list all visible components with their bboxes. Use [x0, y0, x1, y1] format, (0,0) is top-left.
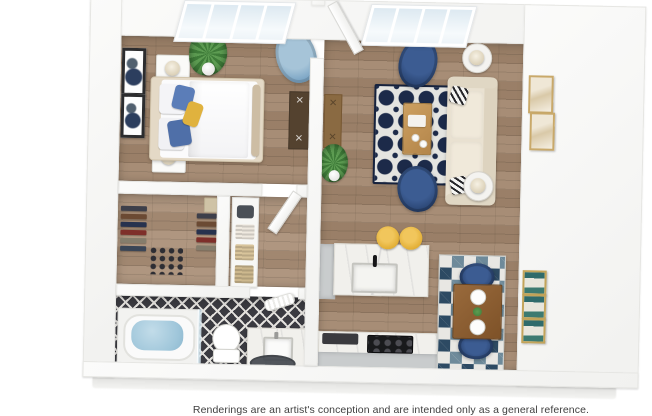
- bedroom-wall-art-1: [121, 48, 146, 96]
- desk-x-leg: ✕: [295, 96, 304, 106]
- woven-basket: [235, 244, 254, 260]
- desk-x-leg: ✕: [295, 134, 304, 144]
- living-console-table: ✕✕: [323, 94, 342, 148]
- dining-wall-art-2: [522, 294, 547, 319]
- kitchen-island: [333, 243, 429, 297]
- dining-wall-art-1: [522, 270, 547, 295]
- window-pane: [259, 6, 292, 40]
- plant-pot: [202, 62, 215, 75]
- shoe-rows: [149, 246, 184, 275]
- table-lamp: [165, 61, 180, 76]
- place-setting: [470, 289, 486, 305]
- vanity-faucet: [274, 332, 278, 339]
- bathtub-water: [131, 320, 184, 351]
- dining-table: [452, 284, 502, 340]
- bed: [149, 76, 265, 162]
- dining-wall-art-3: [521, 318, 546, 343]
- hanging-garment: [121, 206, 147, 212]
- coffee-table: [402, 103, 432, 156]
- hanging-garment: [120, 230, 146, 236]
- floorplan-render: ✕✕ ✕✕: [0, 0, 652, 416]
- table-lamp: [470, 178, 485, 193]
- wall-bathroom-north-stub: [298, 287, 305, 299]
- bed-foot-rail: [251, 84, 261, 156]
- console-x-leg: ✕: [328, 133, 337, 143]
- cup: [419, 140, 427, 148]
- toilet-tank: [213, 349, 240, 364]
- table-centerpiece: [473, 307, 482, 316]
- woven-basket: [235, 224, 254, 239]
- closet-rack-left: [119, 206, 147, 281]
- hanging-garment: [197, 213, 217, 218]
- woven-basket: [234, 265, 253, 283]
- bedroom-window: [173, 0, 296, 44]
- wall-closet-hall: [215, 196, 230, 298]
- disclaimer-caption: Renderings are an artist's conception an…: [140, 404, 642, 416]
- living-wall-art-2: [529, 112, 555, 151]
- kitchen-sink: [351, 263, 398, 294]
- hanging-garment: [196, 245, 216, 250]
- living-wall-art-1: [528, 75, 554, 114]
- hanging-garment: [120, 238, 146, 244]
- plant-pot: [329, 170, 340, 181]
- hanging-garment: [197, 221, 217, 226]
- floorplan: ✕✕ ✕✕: [0, 0, 652, 416]
- hanging-garment: [196, 237, 216, 242]
- cup: [411, 134, 419, 142]
- stove-cooktop: [367, 335, 413, 354]
- closet-rack-right: [196, 213, 217, 275]
- living-window: [360, 4, 477, 48]
- hanging-garment: [121, 222, 147, 228]
- hanging-garment: [120, 246, 146, 252]
- wall-bedroom-living-top-stub: [311, 0, 325, 6]
- place-setting: [469, 319, 485, 335]
- serving-tray: [408, 115, 426, 127]
- bedroom-wall-art-2: [120, 94, 145, 138]
- bathtub-deck: [117, 308, 200, 366]
- faucet: [373, 255, 377, 267]
- console-x-leg: ✕: [329, 99, 338, 109]
- storage-bag: [237, 205, 254, 218]
- hall-shelf: [230, 197, 259, 288]
- hanging-garment: [121, 214, 147, 220]
- hanging-garment: [196, 229, 216, 234]
- table-lamp: [469, 50, 484, 65]
- bedroom-desk: ✕✕: [288, 91, 310, 149]
- countertop-appliance: [322, 333, 358, 345]
